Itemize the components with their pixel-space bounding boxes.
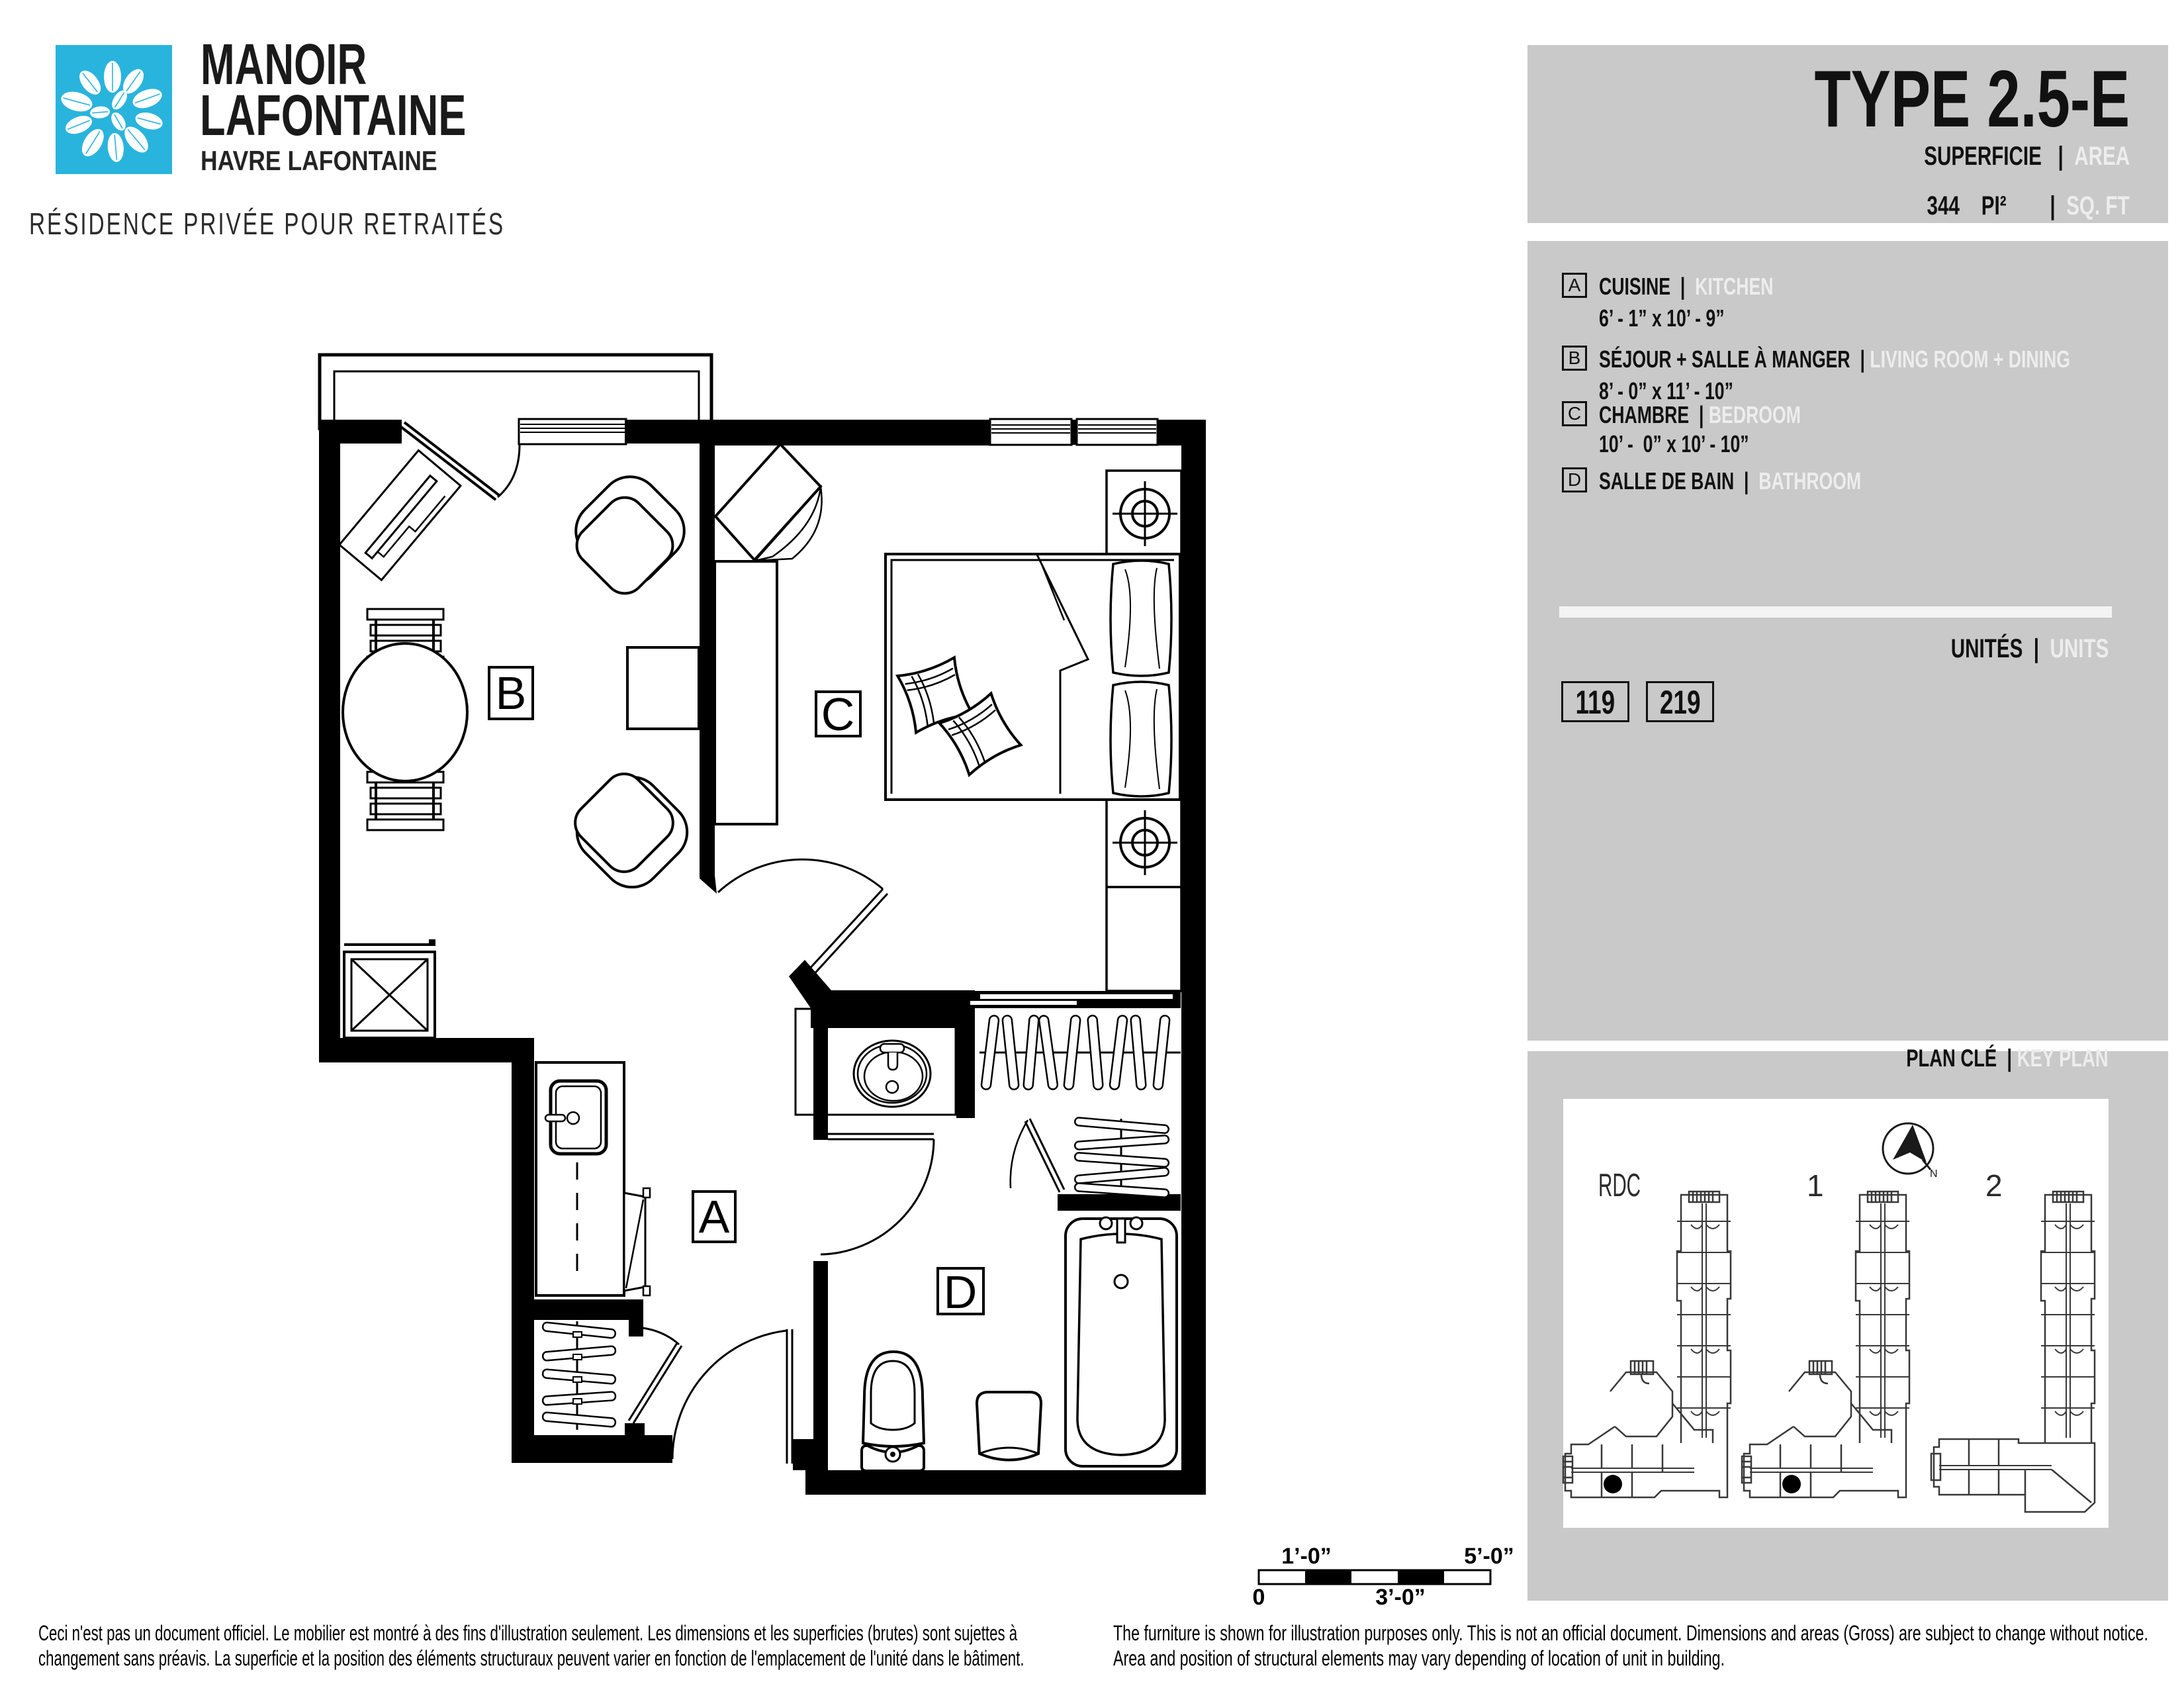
svg-text:D: D xyxy=(944,1266,978,1318)
svg-text:3’-0”: 3’-0” xyxy=(1375,1585,1426,1610)
svg-text:A: A xyxy=(699,1191,730,1243)
svg-text:RDC: RDC xyxy=(1598,1168,1641,1203)
svg-text:N: N xyxy=(1930,1168,1938,1180)
svg-text:B: B xyxy=(496,667,527,719)
svg-text:0: 0 xyxy=(1253,1585,1265,1610)
svg-text:1’-0”: 1’-0” xyxy=(1281,1544,1332,1569)
svg-text:5’-0”: 5’-0” xyxy=(1464,1544,1514,1569)
svg-text:1: 1 xyxy=(1807,1168,1824,1203)
svg-text:C: C xyxy=(821,688,855,740)
svg-text:2: 2 xyxy=(1985,1168,2003,1203)
